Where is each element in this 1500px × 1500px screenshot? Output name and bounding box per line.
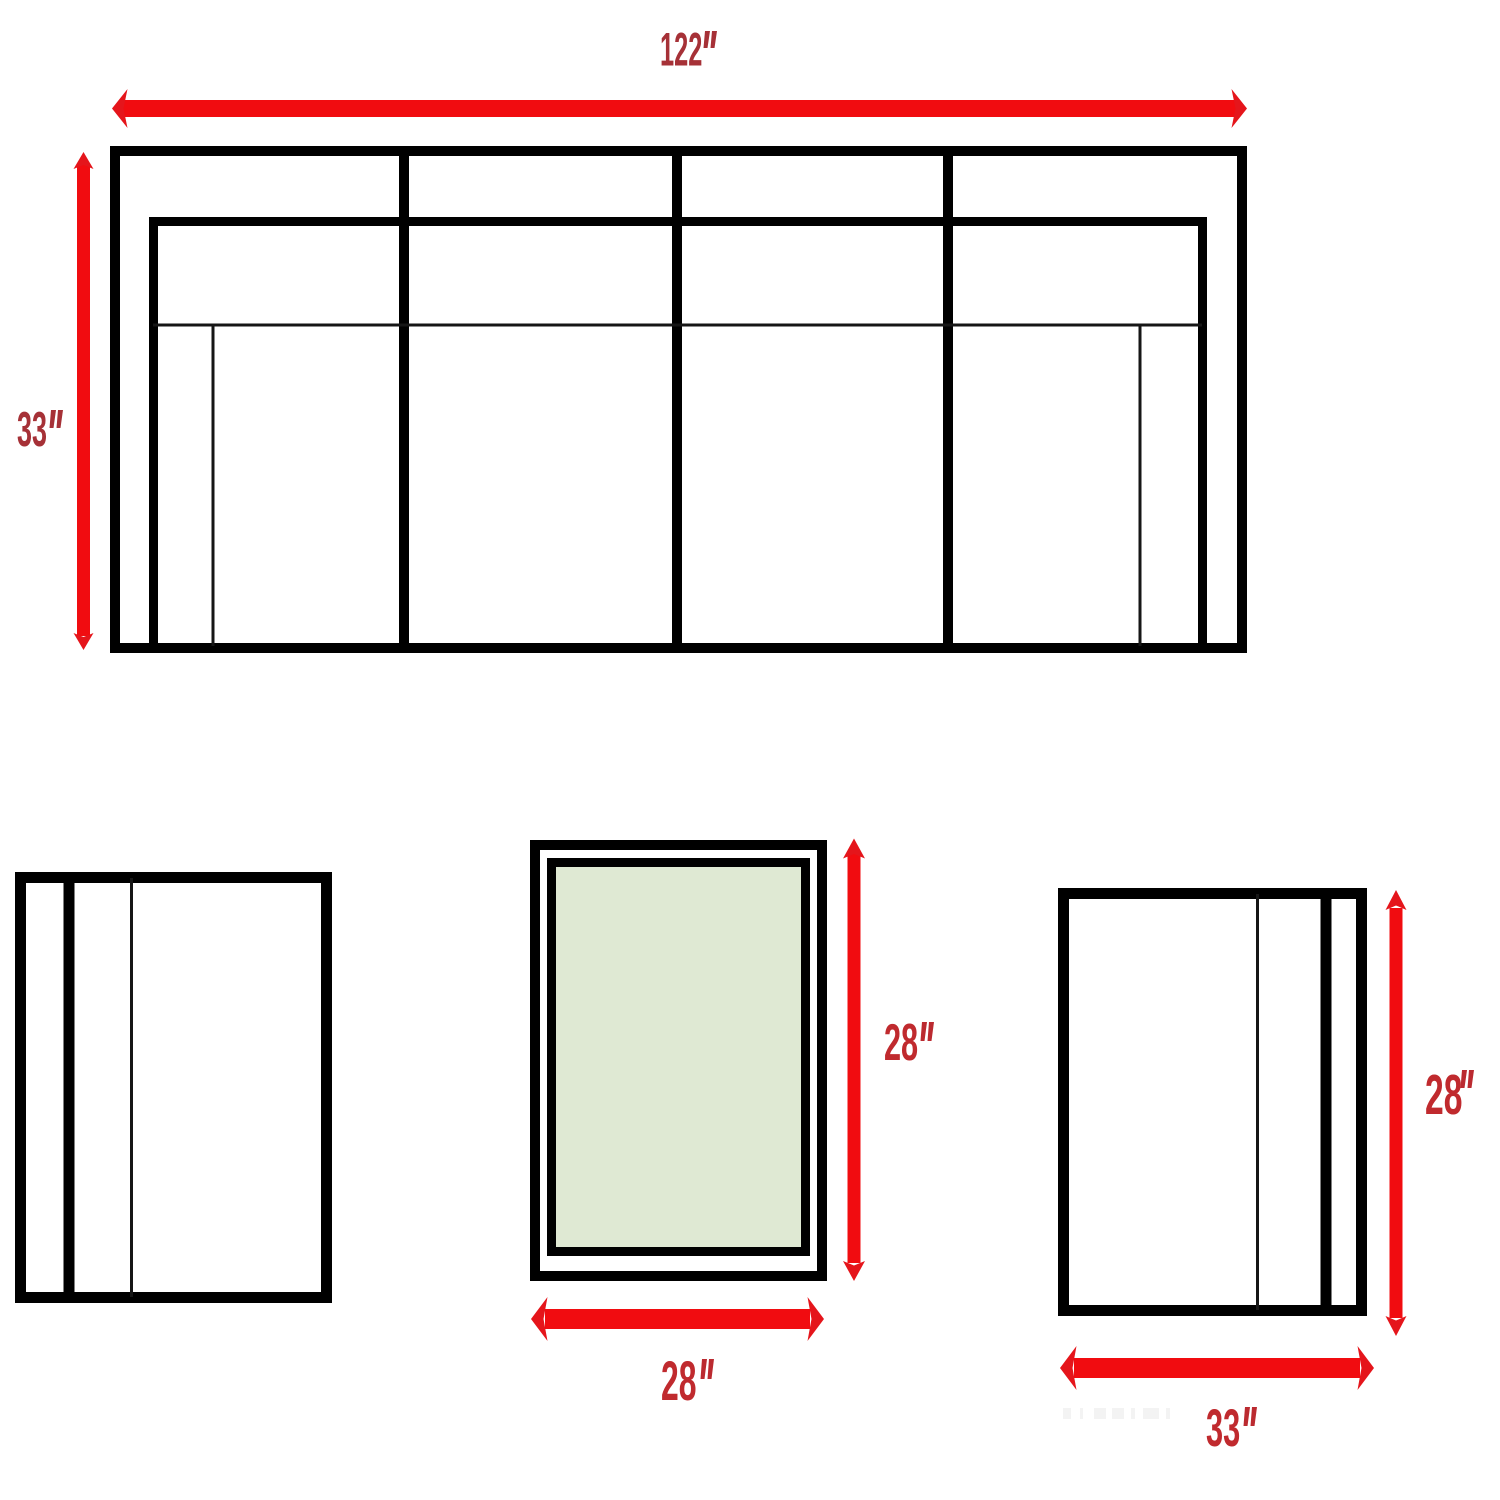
svg-text:33: 33 <box>17 403 47 458</box>
svg-text:28: 28 <box>1425 1063 1462 1126</box>
svg-text:28: 28 <box>661 1350 696 1413</box>
svg-text:33: 33 <box>1206 1400 1240 1459</box>
svg-text:122: 122 <box>660 24 702 76</box>
svg-text:28: 28 <box>884 1014 918 1072</box>
